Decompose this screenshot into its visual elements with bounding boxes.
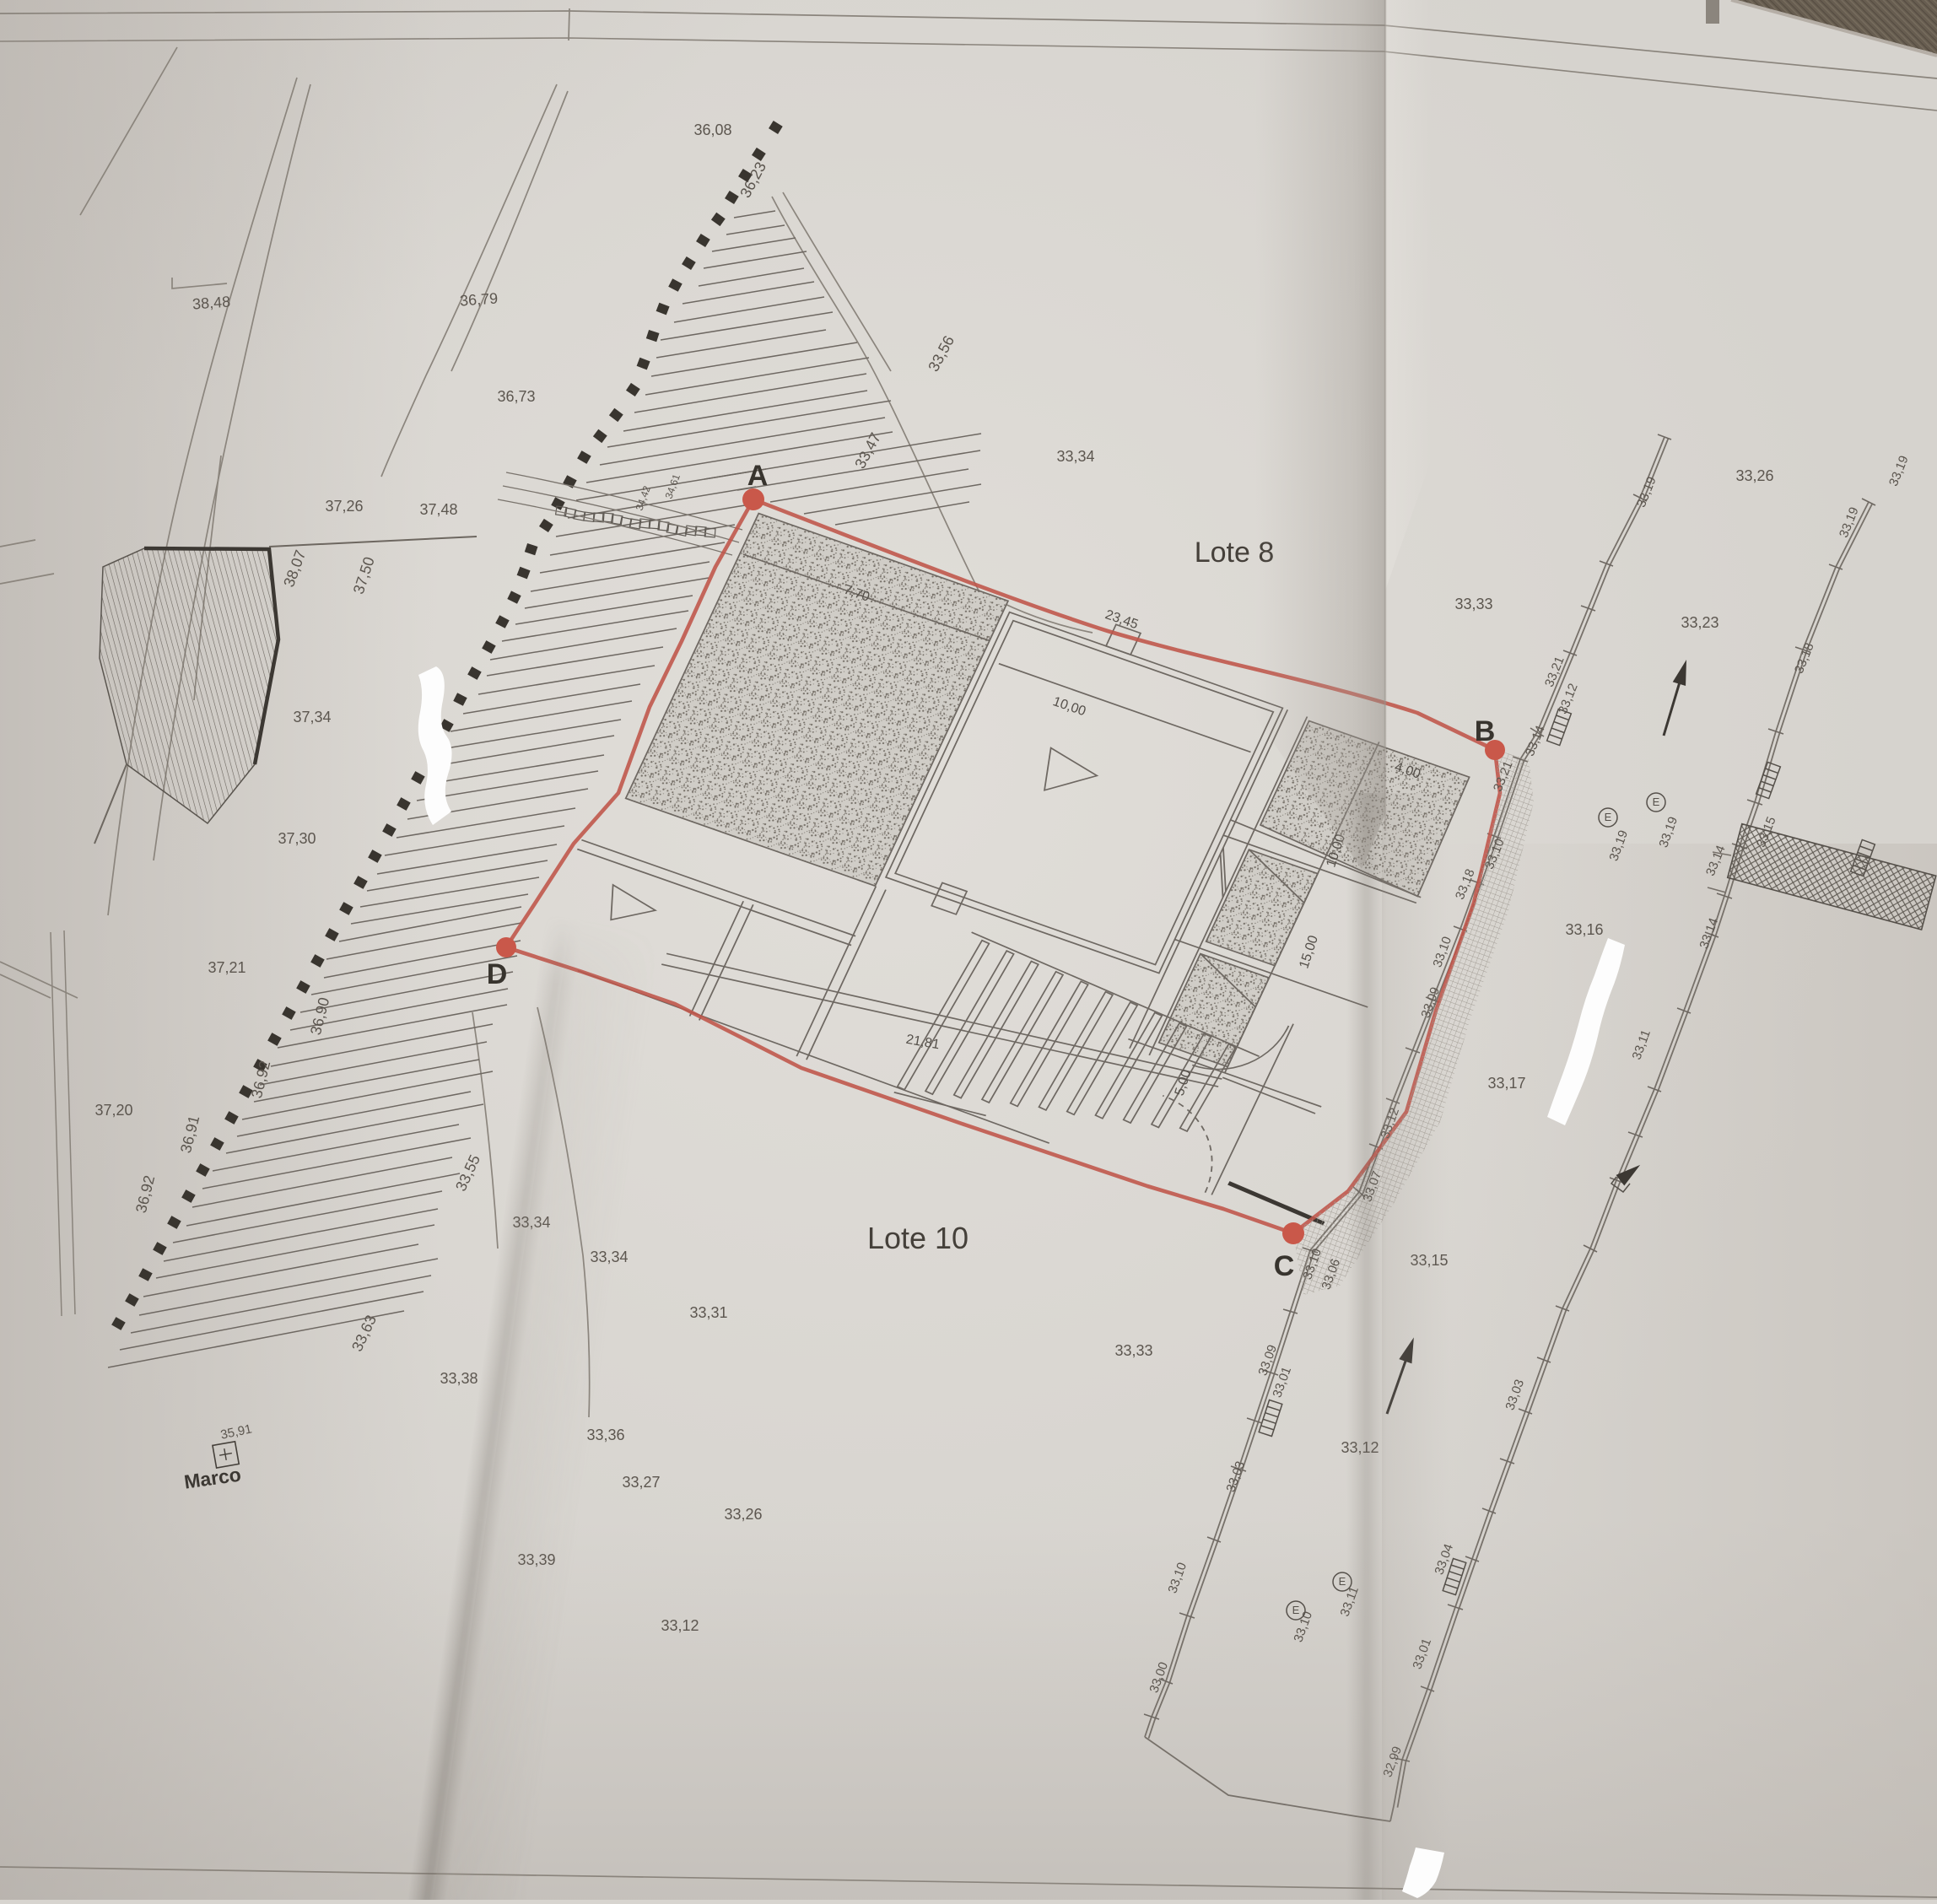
svg-text:37,30: 37,30 bbox=[278, 830, 316, 847]
svg-text:E: E bbox=[1605, 811, 1612, 823]
svg-text:C: C bbox=[1274, 1250, 1295, 1282]
svg-text:E: E bbox=[1292, 1604, 1300, 1616]
svg-text:33,12: 33,12 bbox=[661, 1617, 699, 1634]
svg-text:33,23: 33,23 bbox=[1681, 614, 1718, 631]
svg-text:37,21: 37,21 bbox=[208, 959, 245, 976]
svg-text:E: E bbox=[1339, 1575, 1346, 1588]
svg-text:33,26: 33,26 bbox=[724, 1506, 762, 1523]
svg-text:33,33: 33,33 bbox=[1114, 1342, 1152, 1359]
svg-text:E: E bbox=[1653, 796, 1660, 808]
svg-text:37,34: 37,34 bbox=[293, 709, 331, 725]
svg-text:36,79: 36,79 bbox=[459, 289, 498, 309]
svg-text:37,26: 37,26 bbox=[325, 498, 363, 515]
svg-text:38,48: 38,48 bbox=[192, 293, 230, 312]
svg-text:D: D bbox=[487, 958, 508, 990]
svg-text:A: A bbox=[747, 460, 769, 492]
svg-text:B: B bbox=[1475, 715, 1496, 747]
svg-text:37,48: 37,48 bbox=[419, 501, 457, 518]
svg-text:33,26: 33,26 bbox=[1735, 467, 1773, 484]
svg-text:36,08: 36,08 bbox=[693, 121, 731, 138]
svg-text:37,20: 37,20 bbox=[94, 1102, 132, 1119]
svg-text:33,33: 33,33 bbox=[1454, 596, 1492, 612]
svg-text:33,16: 33,16 bbox=[1565, 921, 1603, 938]
svg-text:33,17: 33,17 bbox=[1487, 1075, 1525, 1092]
svg-text:33,27: 33,27 bbox=[622, 1474, 660, 1491]
svg-text:33,38: 33,38 bbox=[440, 1370, 478, 1387]
svg-text:36,73: 36,73 bbox=[497, 388, 535, 405]
svg-text:Lote 10: Lote 10 bbox=[867, 1221, 968, 1255]
svg-text:33,34: 33,34 bbox=[1056, 448, 1094, 465]
svg-text:33,31: 33,31 bbox=[689, 1304, 727, 1321]
